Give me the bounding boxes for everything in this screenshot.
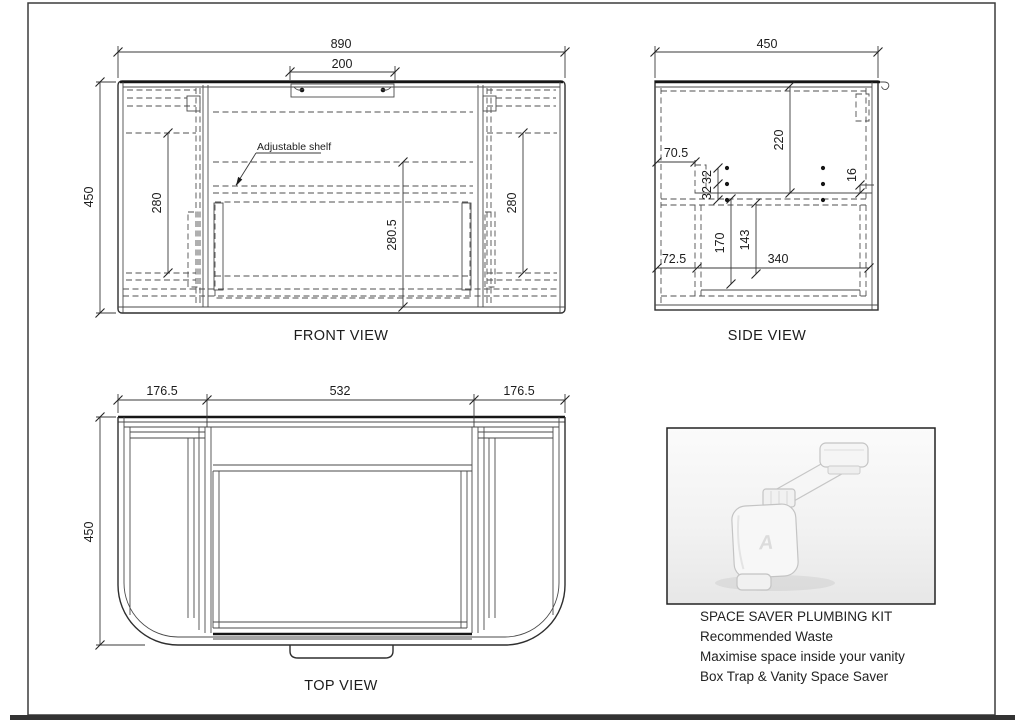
kit-watermark-letter: A (757, 532, 774, 555)
dim-drawer-depth-a-label: 170 (713, 233, 727, 254)
dim-depth-label: 450 (82, 522, 96, 543)
dim-hole-pitch-a-label: 32 (700, 170, 714, 184)
adjustable-shelf-label: Adjustable shelf (257, 141, 331, 153)
drawing-sheet: 890 200 450 280 280 280.5 Adjustable she… (0, 0, 1024, 724)
kit-line-1: Recommended Waste (700, 629, 833, 644)
dim-left-door-label: 280 (150, 193, 164, 214)
dim-right-wing-label: 176.5 (503, 384, 534, 398)
drawer-slide-right (485, 212, 495, 287)
leader-arrowhead (236, 177, 242, 186)
dim-hole-pitch-b-label: 32 (700, 186, 714, 200)
side-view-caption: SIDE VIEW (728, 328, 807, 344)
technical-drawing: 890 200 450 280 280 280.5 Adjustable she… (0, 0, 1024, 724)
handle-recess (291, 84, 394, 97)
front-handle-tab (290, 645, 393, 658)
dim-top-section-label: 220 (772, 130, 786, 151)
dim-right-door-label: 280 (505, 193, 519, 214)
dim-overall-depth-label: 450 (757, 37, 778, 51)
kit-line-3: Box Trap & Vanity Space Saver (700, 669, 889, 684)
dim-left-wing-label: 176.5 (146, 384, 177, 398)
hinge-plate-right (483, 96, 496, 111)
drawer-slide-left (188, 212, 198, 287)
dim-runner-length-label: 340 (768, 252, 789, 266)
kit-title: SPACE SAVER PLUMBING KIT (700, 609, 892, 624)
dim-drawer-depth-b-label: 143 (738, 230, 752, 251)
dim-centre-opening-label: 280.5 (385, 219, 399, 250)
dim-front-offset-label: 70.5 (664, 146, 688, 160)
hidden-bracket (856, 94, 869, 121)
dim-centre-label: 532 (330, 384, 351, 398)
kit-line-2: Maximise space inside your vanity (700, 649, 905, 664)
top-view-caption: TOP VIEW (304, 678, 378, 694)
plumbing-kit-panel: A SPACE SAVER PLUMBING KIT Recommended W… (667, 428, 935, 684)
dim-overall-width-label: 890 (331, 37, 352, 51)
dim-handle-width-label: 200 (332, 57, 353, 71)
side-view: 450 220 70.5 32 32 16 170 143 (651, 37, 889, 344)
benchtop-edge-profile (880, 82, 889, 90)
dim-back-offset-label: 72.5 (662, 252, 686, 266)
hinge-plate-left (187, 96, 200, 111)
top-view: 176.5 532 176.5 450 TOP VIEW (82, 384, 570, 694)
dim-rail-label: 16 (845, 168, 859, 182)
hidden-drawer-box (215, 202, 470, 298)
dim-overall-height-label: 450 (82, 187, 96, 208)
front-view: 890 200 450 280 280 280.5 Adjustable she… (82, 37, 570, 344)
front-view-caption: FRONT VIEW (294, 328, 389, 344)
